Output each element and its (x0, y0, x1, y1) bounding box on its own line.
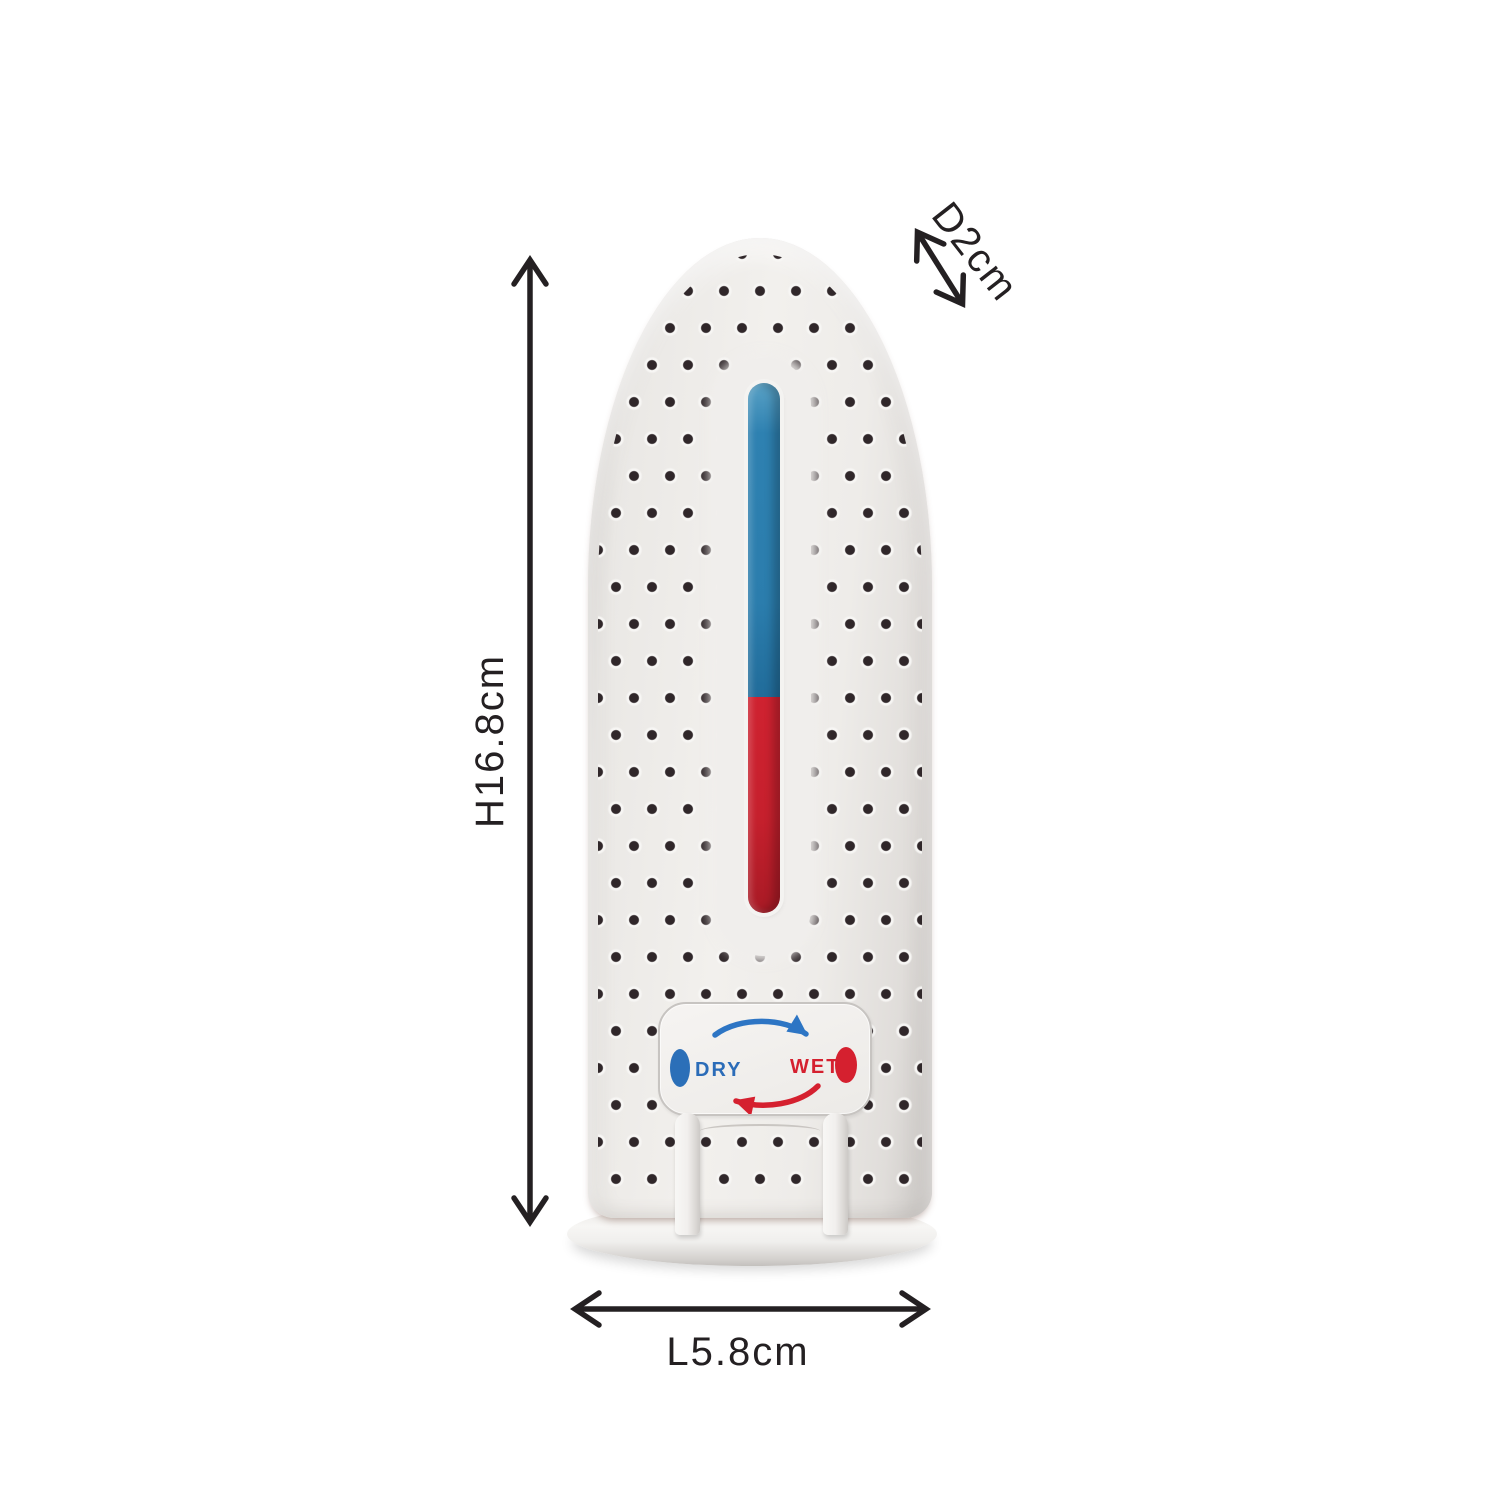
dry-label: DRY (695, 1059, 742, 1081)
dry-to-wet-arrow-icon (715, 1021, 806, 1035)
right-foot-prong (823, 1113, 848, 1235)
moisture-indicator-window (748, 383, 780, 913)
indicator-dry-level (748, 383, 780, 697)
indicator-wet-level (748, 697, 780, 913)
dehumidifier-body: DRY WET (588, 238, 932, 1218)
left-foot-prong (675, 1113, 700, 1235)
length-dimension-label: L5.8cm (640, 1329, 836, 1375)
wet-indicator-oval (835, 1047, 857, 1083)
product-image-stage: DRY WET H16.8cm D2cm L5.8cm (0, 0, 1500, 1500)
height-dimension-label: H16.8cm (467, 663, 513, 819)
depth-dimension-label: D2cm (909, 176, 1041, 327)
dry-wet-panel: DRY WET (658, 1002, 872, 1116)
dry-indicator-oval (670, 1049, 690, 1087)
body-seam-line (700, 1124, 820, 1138)
wet-label: WET (790, 1056, 840, 1078)
wet-to-dry-arrow-icon (736, 1086, 818, 1105)
